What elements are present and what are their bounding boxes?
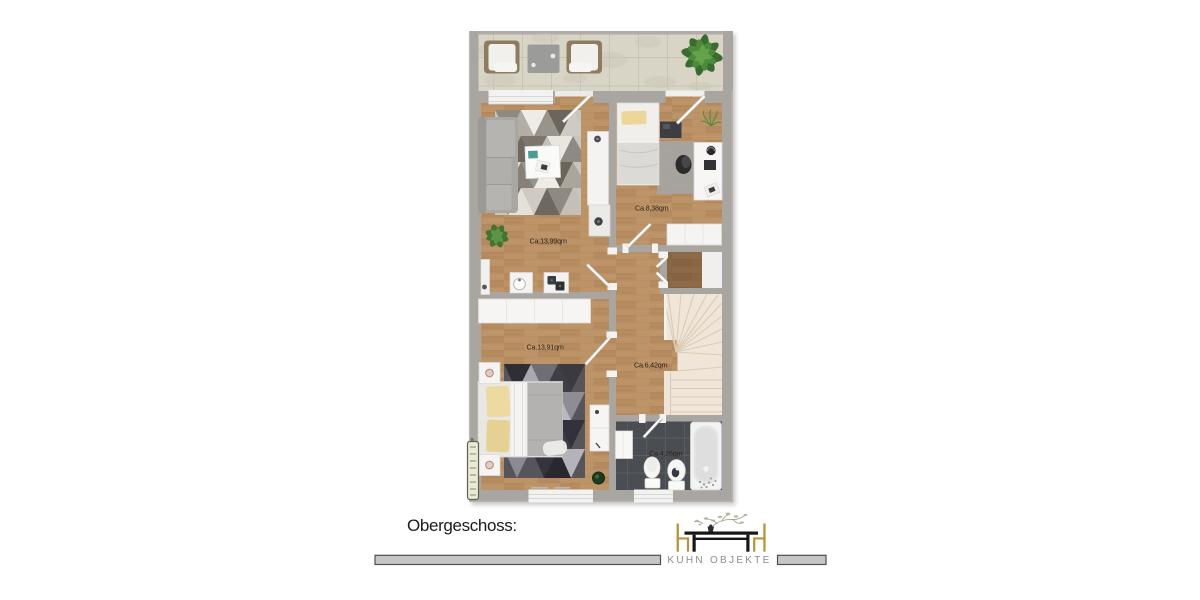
svg-text:Ca.13,91qm: Ca.13,91qm xyxy=(527,343,564,352)
svg-text:Ca.6,42qm: Ca.6,42qm xyxy=(634,361,668,370)
svg-text:Ca.8,38qm: Ca.8,38qm xyxy=(635,204,669,213)
svg-text:KUHN OBJEKTE: KUHN OBJEKTE xyxy=(667,555,771,566)
svg-text:Ca.13,99qm: Ca.13,99qm xyxy=(530,237,567,246)
svg-text:Ca.4,26qm: Ca.4,26qm xyxy=(649,449,683,458)
svg-text:Obergeschoss:: Obergeschoss: xyxy=(407,516,517,535)
